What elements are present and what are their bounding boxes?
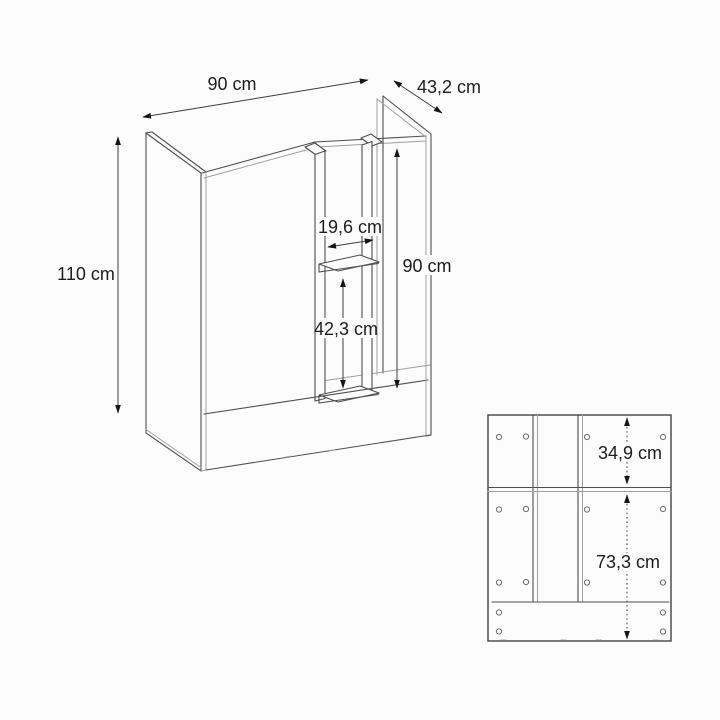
left-side-panel [146, 132, 206, 471]
dimension-width: 90 cm [143, 74, 368, 117]
height-dimension-label: 110 cm [57, 264, 115, 284]
column-right-wall [362, 142, 372, 395]
dimension-depth: 43,2 cm [394, 77, 481, 113]
column-left-wall [315, 151, 325, 401]
width-dimension-label: 90 cm [207, 74, 256, 94]
lower-section-dimension-label: 73,3 cm [596, 552, 660, 572]
dimension-inner-height: 90 cm [397, 149, 452, 388]
diagram-canvas: 90 cm 43,2 cm 110 cm 19,6 cm 90 cm 42,3 … [0, 0, 720, 720]
furniture-dimension-diagram: 90 cm 43,2 cm 110 cm 19,6 cm 90 cm 42,3 … [0, 0, 720, 720]
shelf-spacing-dimension-label: 42,3 cm [314, 319, 378, 339]
cabinet-perspective-view: 90 cm 43,2 cm 110 cm 19,6 cm 90 cm 42,3 … [57, 74, 481, 471]
upper-section-dimension-label: 34,9 cm [598, 443, 662, 463]
base-back-edge [322, 365, 430, 381]
niche-width-dimension-label: 19,6 cm [318, 217, 382, 237]
right-side-panel-front-edge [426, 134, 431, 436]
depth-dimension-label: 43,2 cm [417, 77, 481, 97]
dimension-height: 110 cm [57, 137, 118, 413]
top-rail [202, 136, 426, 178]
inner-height-dimension-label: 90 cm [402, 256, 451, 276]
back-panel-view: 34,9 cm 73,3 cm [488, 415, 671, 641]
